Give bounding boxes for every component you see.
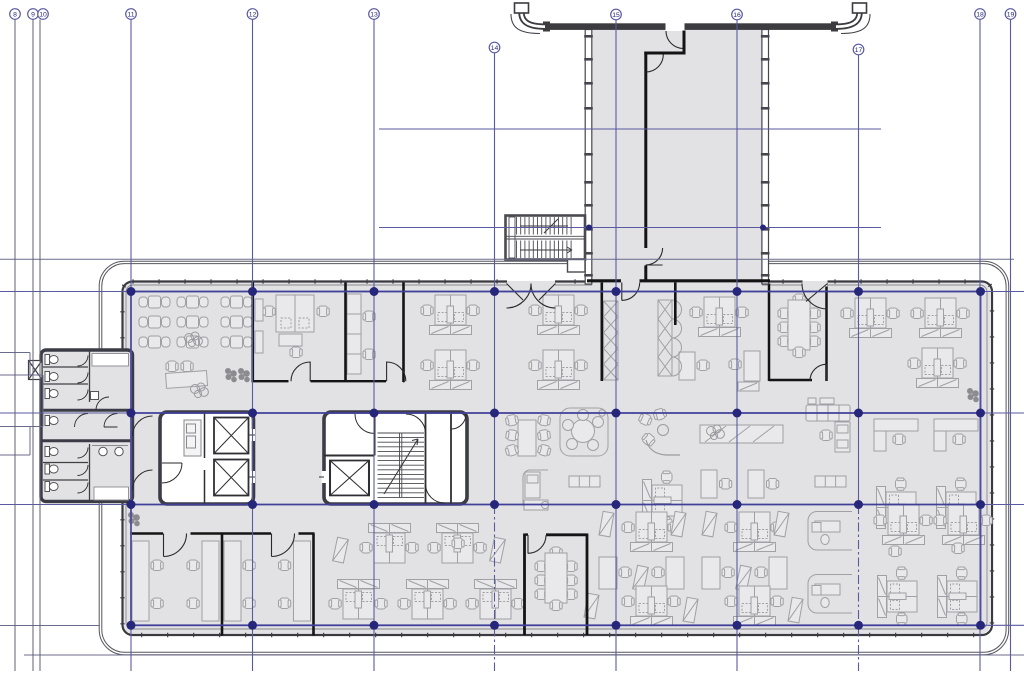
svg-text:9: 9 (31, 11, 35, 18)
svg-text:10: 10 (39, 11, 47, 18)
svg-text:18: 18 (976, 11, 984, 18)
svg-text:19: 19 (1007, 11, 1015, 18)
svg-text:17: 17 (855, 47, 863, 54)
svg-text:15: 15 (612, 12, 620, 19)
svg-text:8: 8 (13, 11, 17, 18)
svg-text:12: 12 (249, 11, 257, 18)
svg-text:14: 14 (491, 45, 499, 52)
svg-text:11: 11 (127, 11, 134, 18)
svg-text:16: 16 (733, 12, 741, 19)
svg-text:13: 13 (370, 11, 378, 18)
